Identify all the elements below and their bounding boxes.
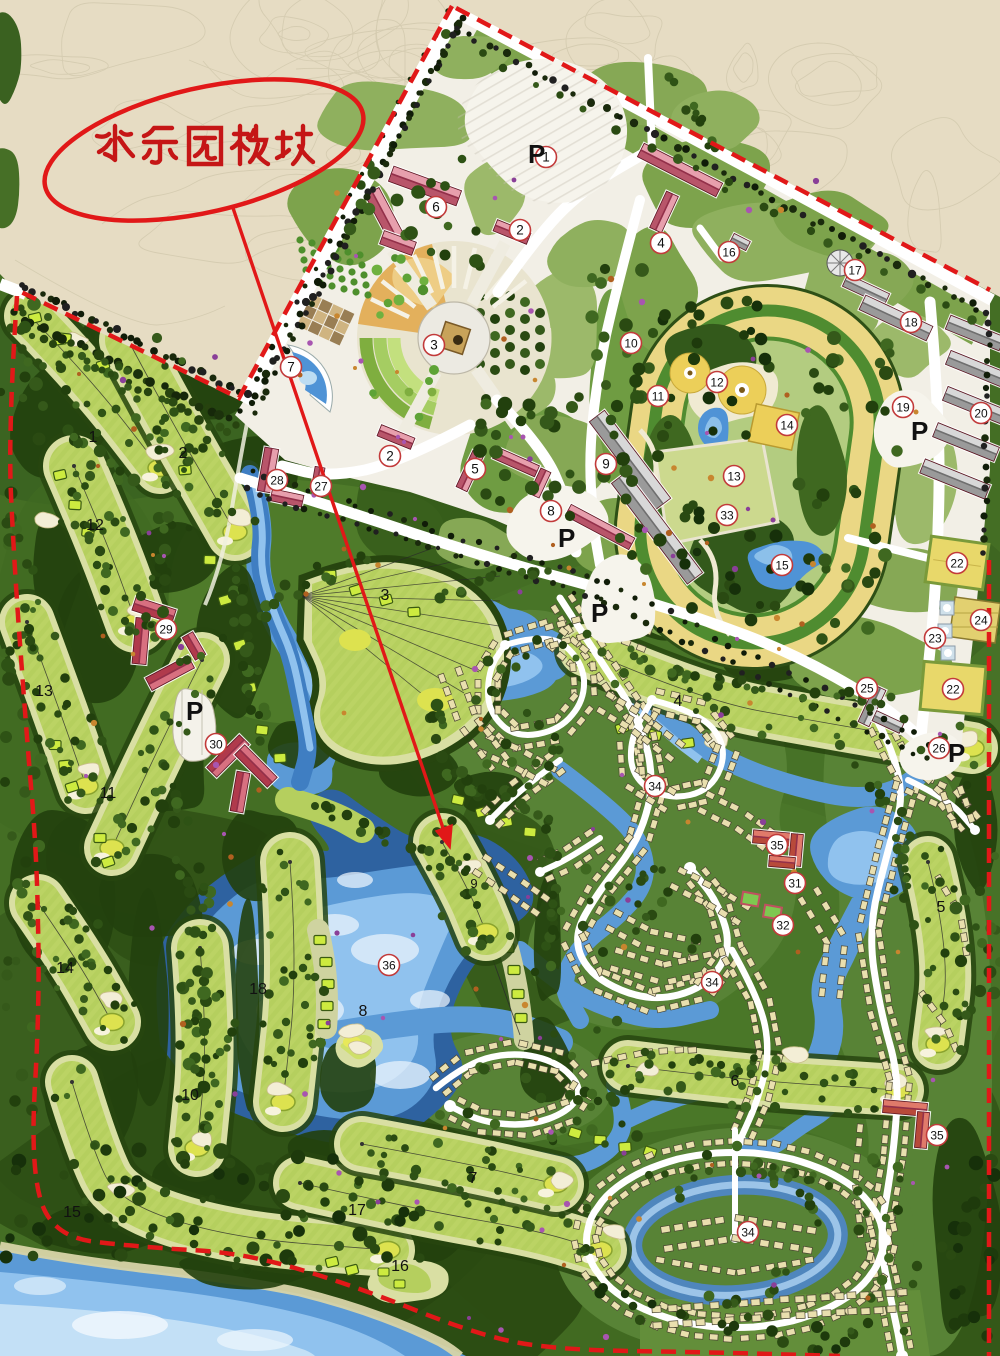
- svg-text:25: 25: [860, 682, 874, 696]
- svg-text:8: 8: [547, 504, 555, 519]
- svg-text:19: 19: [896, 401, 910, 415]
- svg-text:30: 30: [209, 738, 223, 752]
- svg-text:36: 36: [382, 959, 396, 973]
- svg-text:23: 23: [928, 632, 942, 646]
- svg-text:26: 26: [932, 742, 946, 756]
- svg-text:1: 1: [89, 429, 98, 446]
- svg-text:34: 34: [648, 780, 662, 794]
- svg-text:5: 5: [471, 462, 479, 477]
- svg-text:15: 15: [63, 1204, 81, 1221]
- svg-text:17: 17: [848, 264, 862, 278]
- svg-text:14: 14: [56, 960, 74, 977]
- svg-text:18: 18: [904, 316, 918, 330]
- svg-text:P: P: [558, 523, 575, 553]
- svg-text:4: 4: [674, 693, 683, 710]
- svg-text:P: P: [591, 598, 608, 628]
- svg-text:11: 11: [100, 785, 117, 802]
- svg-text:7: 7: [287, 360, 295, 375]
- svg-text:13: 13: [727, 470, 741, 484]
- svg-text:P: P: [186, 696, 203, 726]
- svg-text:12: 12: [86, 517, 104, 534]
- svg-text:35: 35: [930, 1129, 944, 1143]
- svg-text:10: 10: [181, 1087, 199, 1104]
- svg-text:7: 7: [469, 1170, 478, 1187]
- svg-text:24: 24: [974, 614, 988, 628]
- svg-text:3: 3: [430, 338, 438, 353]
- svg-text:3: 3: [381, 587, 390, 604]
- svg-text:16: 16: [391, 1258, 409, 1275]
- svg-text:33: 33: [720, 509, 734, 523]
- svg-text:P: P: [911, 416, 928, 446]
- svg-text:2: 2: [516, 223, 524, 238]
- svg-text:13: 13: [35, 683, 53, 700]
- svg-text:2: 2: [179, 445, 188, 462]
- svg-text:27: 27: [314, 480, 328, 494]
- svg-text:17: 17: [348, 1202, 366, 1219]
- svg-text:P: P: [528, 139, 545, 169]
- svg-text:9: 9: [470, 876, 477, 891]
- svg-text:22: 22: [946, 683, 960, 697]
- svg-text:35: 35: [770, 839, 784, 853]
- svg-text:22: 22: [950, 557, 964, 571]
- svg-text:12: 12: [710, 376, 724, 390]
- svg-text:34: 34: [705, 976, 719, 990]
- svg-text:9: 9: [602, 457, 610, 472]
- svg-text:2: 2: [386, 449, 394, 464]
- svg-text:20: 20: [974, 407, 988, 421]
- svg-text:16: 16: [722, 246, 736, 260]
- svg-text:10: 10: [624, 337, 638, 351]
- svg-text:11: 11: [652, 390, 665, 404]
- svg-text:31: 31: [788, 877, 802, 891]
- svg-text:15: 15: [775, 559, 789, 573]
- svg-text:6: 6: [731, 1073, 740, 1090]
- svg-text:29: 29: [159, 623, 173, 637]
- svg-text:28: 28: [270, 474, 284, 488]
- svg-text:6: 6: [432, 200, 440, 215]
- svg-text:4: 4: [657, 236, 665, 251]
- svg-text:32: 32: [776, 919, 790, 933]
- svg-text:14: 14: [780, 419, 794, 433]
- svg-text:34: 34: [741, 1226, 755, 1240]
- svg-text:18: 18: [249, 981, 267, 998]
- svg-text:8: 8: [359, 1003, 368, 1020]
- svg-text:P: P: [948, 738, 965, 768]
- svg-text:5: 5: [937, 899, 946, 916]
